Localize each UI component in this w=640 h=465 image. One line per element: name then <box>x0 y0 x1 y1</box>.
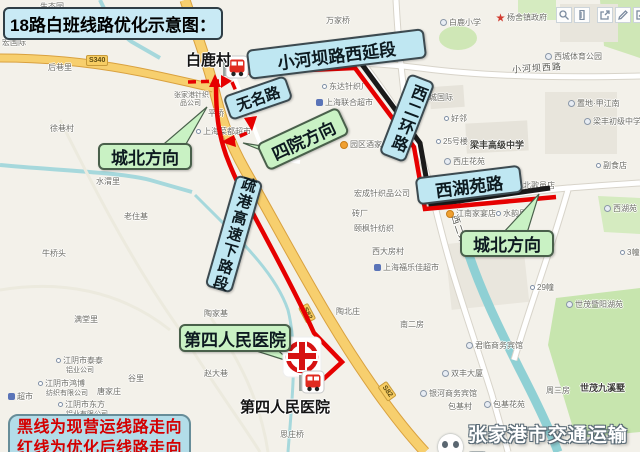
zoom-icon[interactable] <box>556 7 572 23</box>
agency-watermark: 张家港市交通运输局 <box>438 420 640 452</box>
agency-name: 张家港市交通运输局 <box>468 420 640 452</box>
map-canvas[interactable]: 生态园宏国际后巷里徐巷村万家桥白鹿小学杨舍镇政府西城体育公园小河坝西路置地·甲江… <box>0 0 640 452</box>
legend-current-route: 黑线为现营运线路走向 <box>17 417 182 438</box>
callout-hospital: 第四人民医院 <box>179 324 291 352</box>
ruler-icon[interactable] <box>574 7 590 23</box>
screenshot-stage: 生态园宏国际后巷里徐巷村万家桥白鹿小学杨舍镇政府西城体育公园小河坝西路置地·甲江… <box>0 0 640 465</box>
pencil-icon[interactable] <box>615 7 631 23</box>
agency-logo-icon <box>438 434 463 452</box>
route-legend: 黑线为现营运线路走向 红线为优化后线路走向 <box>8 414 191 452</box>
bus-stop-icon-hospital <box>299 371 324 393</box>
note-icon[interactable] <box>633 7 640 23</box>
map-toolbar <box>554 7 640 23</box>
page-title: 18路白班线路优化示意图： <box>3 7 223 40</box>
share-icon[interactable] <box>597 7 613 23</box>
callout-chengbei-right: 城北方向 <box>460 230 554 257</box>
stop-label-bailucun: 白鹿村 <box>186 49 231 70</box>
callout-chengbei-left: 城北方向 <box>98 143 192 170</box>
legend-optimized-route: 红线为优化后线路走向 <box>17 438 182 452</box>
stop-label-hospital: 第四人民医院 <box>240 396 330 417</box>
